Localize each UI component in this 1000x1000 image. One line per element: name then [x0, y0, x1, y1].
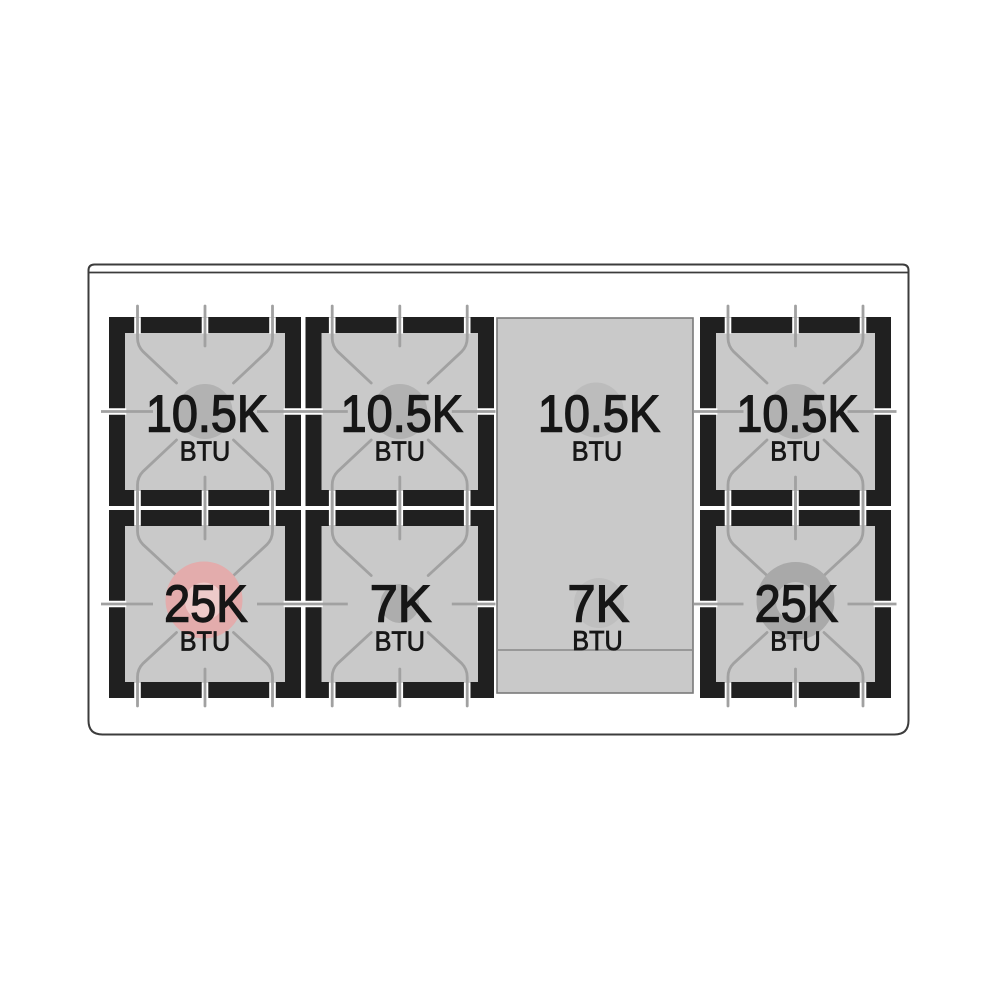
svg-text:BTU: BTU: [180, 435, 230, 467]
svg-text:10.5K: 10.5K: [538, 385, 660, 443]
svg-text:10.5K: 10.5K: [341, 385, 463, 443]
svg-text:10.5K: 10.5K: [146, 385, 268, 443]
svg-text:7K: 7K: [370, 575, 432, 633]
svg-text:BTU: BTU: [770, 435, 820, 467]
svg-text:BTU: BTU: [572, 625, 622, 657]
svg-text:BTU: BTU: [572, 435, 622, 467]
svg-text:10.5K: 10.5K: [736, 385, 858, 443]
svg-text:BTU: BTU: [770, 625, 820, 657]
svg-text:BTU: BTU: [375, 625, 425, 657]
svg-text:BTU: BTU: [180, 625, 230, 657]
svg-text:BTU: BTU: [375, 435, 425, 467]
